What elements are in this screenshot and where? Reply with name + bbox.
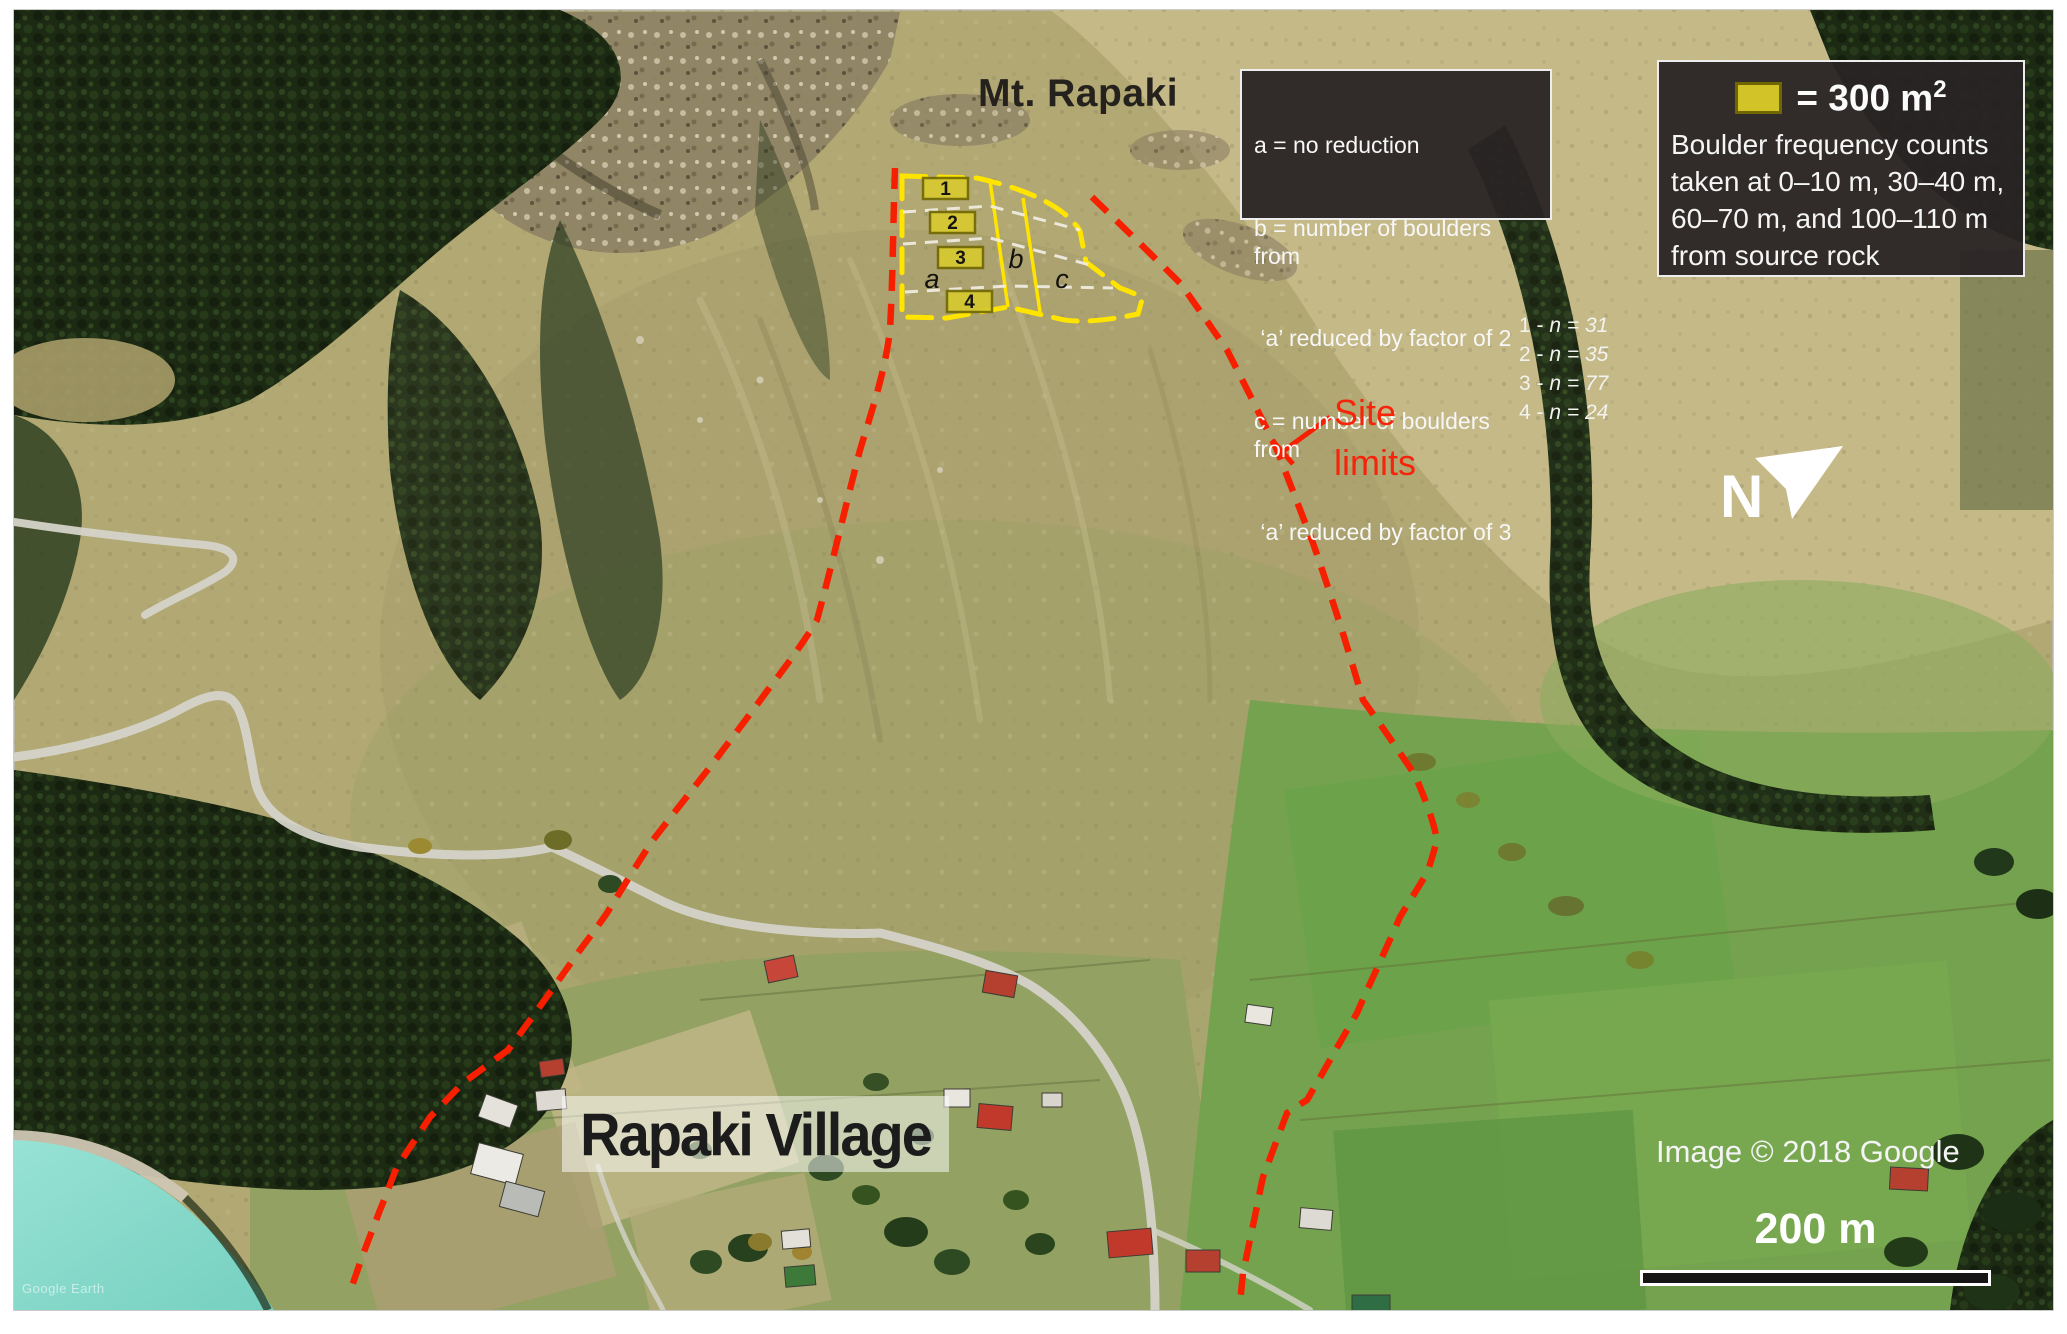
legend-line: 60–70 m, and 100–110 m — [1671, 200, 2011, 237]
site-limits-line2: limits — [1334, 438, 1416, 488]
count-row: 2 - n = 35 — [1519, 340, 1608, 369]
area-legend: = 300 m2 Boulder frequency counts taken … — [1657, 60, 2025, 277]
count-expression: n = 35 — [1549, 343, 1608, 366]
count-prefix: 1 - — [1519, 314, 1549, 337]
legend-line: b = number of boulders from — [1254, 215, 1538, 270]
area-swatch-icon — [1735, 82, 1782, 114]
count-expression: n = 24 — [1549, 401, 1608, 424]
site-limits-line1: Site — [1334, 388, 1416, 438]
plot-number-2: 2 — [947, 213, 958, 234]
plot-number-1: 1 — [940, 179, 951, 200]
count-expression: n = 31 — [1549, 314, 1608, 337]
google-attribution: Image © 2018 Google — [1656, 1134, 1960, 1170]
legend-line: ‘a’ reduced by factor of 2 — [1254, 325, 1538, 353]
legend-line: taken at 0–10 m, 30–40 m, — [1671, 163, 2011, 200]
count-prefix: 2 - — [1519, 343, 1549, 366]
area-equation-exponent: 2 — [1933, 76, 1946, 103]
site-limits-label: Site limits — [1334, 388, 1416, 488]
legend-line: ‘a’ reduced by factor of 3 — [1254, 519, 1538, 547]
north-label: N — [1720, 462, 1763, 531]
legend-line: Boulder frequency counts — [1671, 126, 2011, 163]
plot-number-4: 4 — [964, 292, 975, 313]
count-row: 1 - n = 31 — [1519, 311, 1608, 340]
area-equation-text: = 300 m — [1796, 78, 1933, 119]
count-row: 3 - n = 77 — [1519, 369, 1608, 398]
reduction-legend: a = no reduction b = number of boulders … — [1240, 69, 1552, 220]
legend-line: from source rock — [1671, 237, 2011, 274]
scale-bar — [1640, 1270, 1991, 1286]
zone-b-label: b — [1008, 244, 1023, 274]
area-swatch-equation: = 300 m2 — [1796, 76, 1946, 119]
village-label: Rapaki Village — [580, 1099, 931, 1169]
count-expression: n = 77 — [1549, 372, 1608, 395]
scale-bar-label: 200 m — [1640, 1205, 1991, 1254]
area-legend-swatch-row: = 300 m2 — [1671, 70, 2011, 126]
plot-number-3: 3 — [955, 248, 966, 269]
legend-line: a = no reduction — [1254, 132, 1538, 160]
mountain-label: Mt. Rapaki — [978, 72, 1178, 116]
village-label-band: Rapaki Village — [562, 1096, 949, 1172]
count-prefix: 3 - — [1519, 372, 1549, 395]
count-row: 4 - n = 24 — [1519, 398, 1608, 427]
zone-a-label: a — [924, 264, 939, 294]
zone-c-label: c — [1055, 264, 1069, 294]
boulder-count-list: 1 - n = 31 2 - n = 35 3 - n = 77 4 - n =… — [1519, 311, 1608, 427]
google-earth-watermark: Google Earth — [22, 1281, 105, 1296]
count-prefix: 4 - — [1519, 401, 1549, 424]
